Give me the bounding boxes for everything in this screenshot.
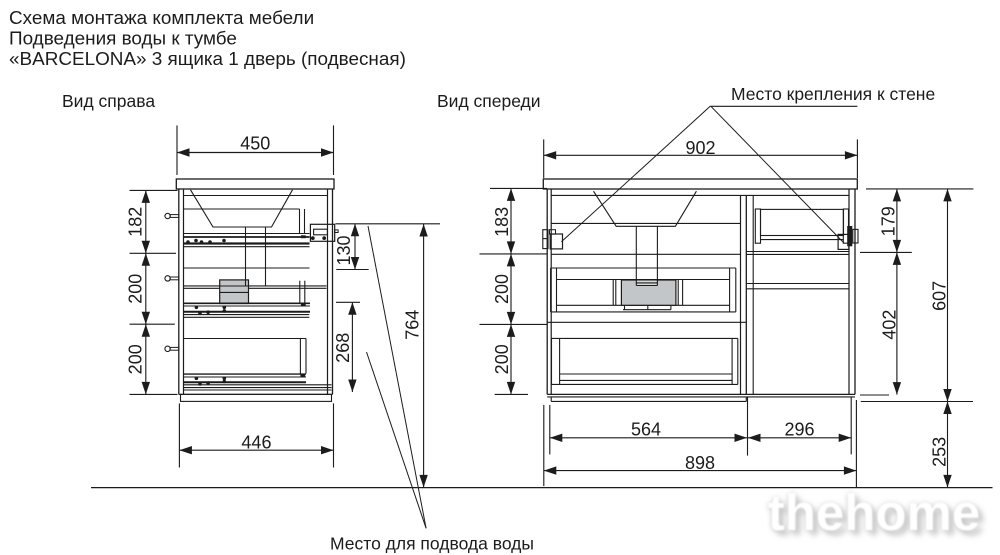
svg-text:268: 268 — [333, 333, 353, 363]
svg-text:764: 764 — [403, 310, 423, 340]
svg-text:Место для подвода воды: Место для подвода воды — [330, 534, 534, 554]
svg-text:thehome: thehome — [768, 484, 981, 541]
svg-text:200: 200 — [492, 274, 512, 304]
svg-text:607: 607 — [930, 281, 950, 311]
svg-text:182: 182 — [126, 207, 146, 237]
svg-text:402: 402 — [880, 310, 900, 340]
svg-text:898: 898 — [685, 453, 715, 473]
svg-text:«BARCELONA» 3 ящика 1 дверь (п: «BARCELONA» 3 ящика 1 дверь (подвесная) — [9, 49, 406, 70]
svg-text:Подведения воды к тумбе: Подведения воды к тумбе — [9, 29, 237, 50]
svg-text:Схема монтажа комплекта мебели: Схема монтажа комплекта мебели — [9, 8, 314, 29]
svg-text:Вид спереди: Вид спереди — [437, 91, 541, 111]
svg-text:564: 564 — [631, 420, 661, 440]
svg-text:200: 200 — [126, 344, 146, 374]
svg-text:446: 446 — [241, 432, 271, 452]
svg-text:296: 296 — [784, 420, 814, 440]
svg-text:450: 450 — [240, 133, 270, 153]
svg-text:179: 179 — [879, 206, 899, 236]
svg-text:130: 130 — [334, 235, 354, 265]
svg-text:253: 253 — [930, 437, 950, 467]
svg-text:183: 183 — [492, 207, 512, 237]
svg-text:Место крепления к стене: Место крепления к стене — [731, 84, 935, 104]
svg-text:200: 200 — [126, 274, 146, 304]
svg-text:200: 200 — [492, 344, 512, 374]
svg-text:Вид справа: Вид справа — [62, 91, 155, 111]
svg-text:902: 902 — [686, 138, 716, 158]
